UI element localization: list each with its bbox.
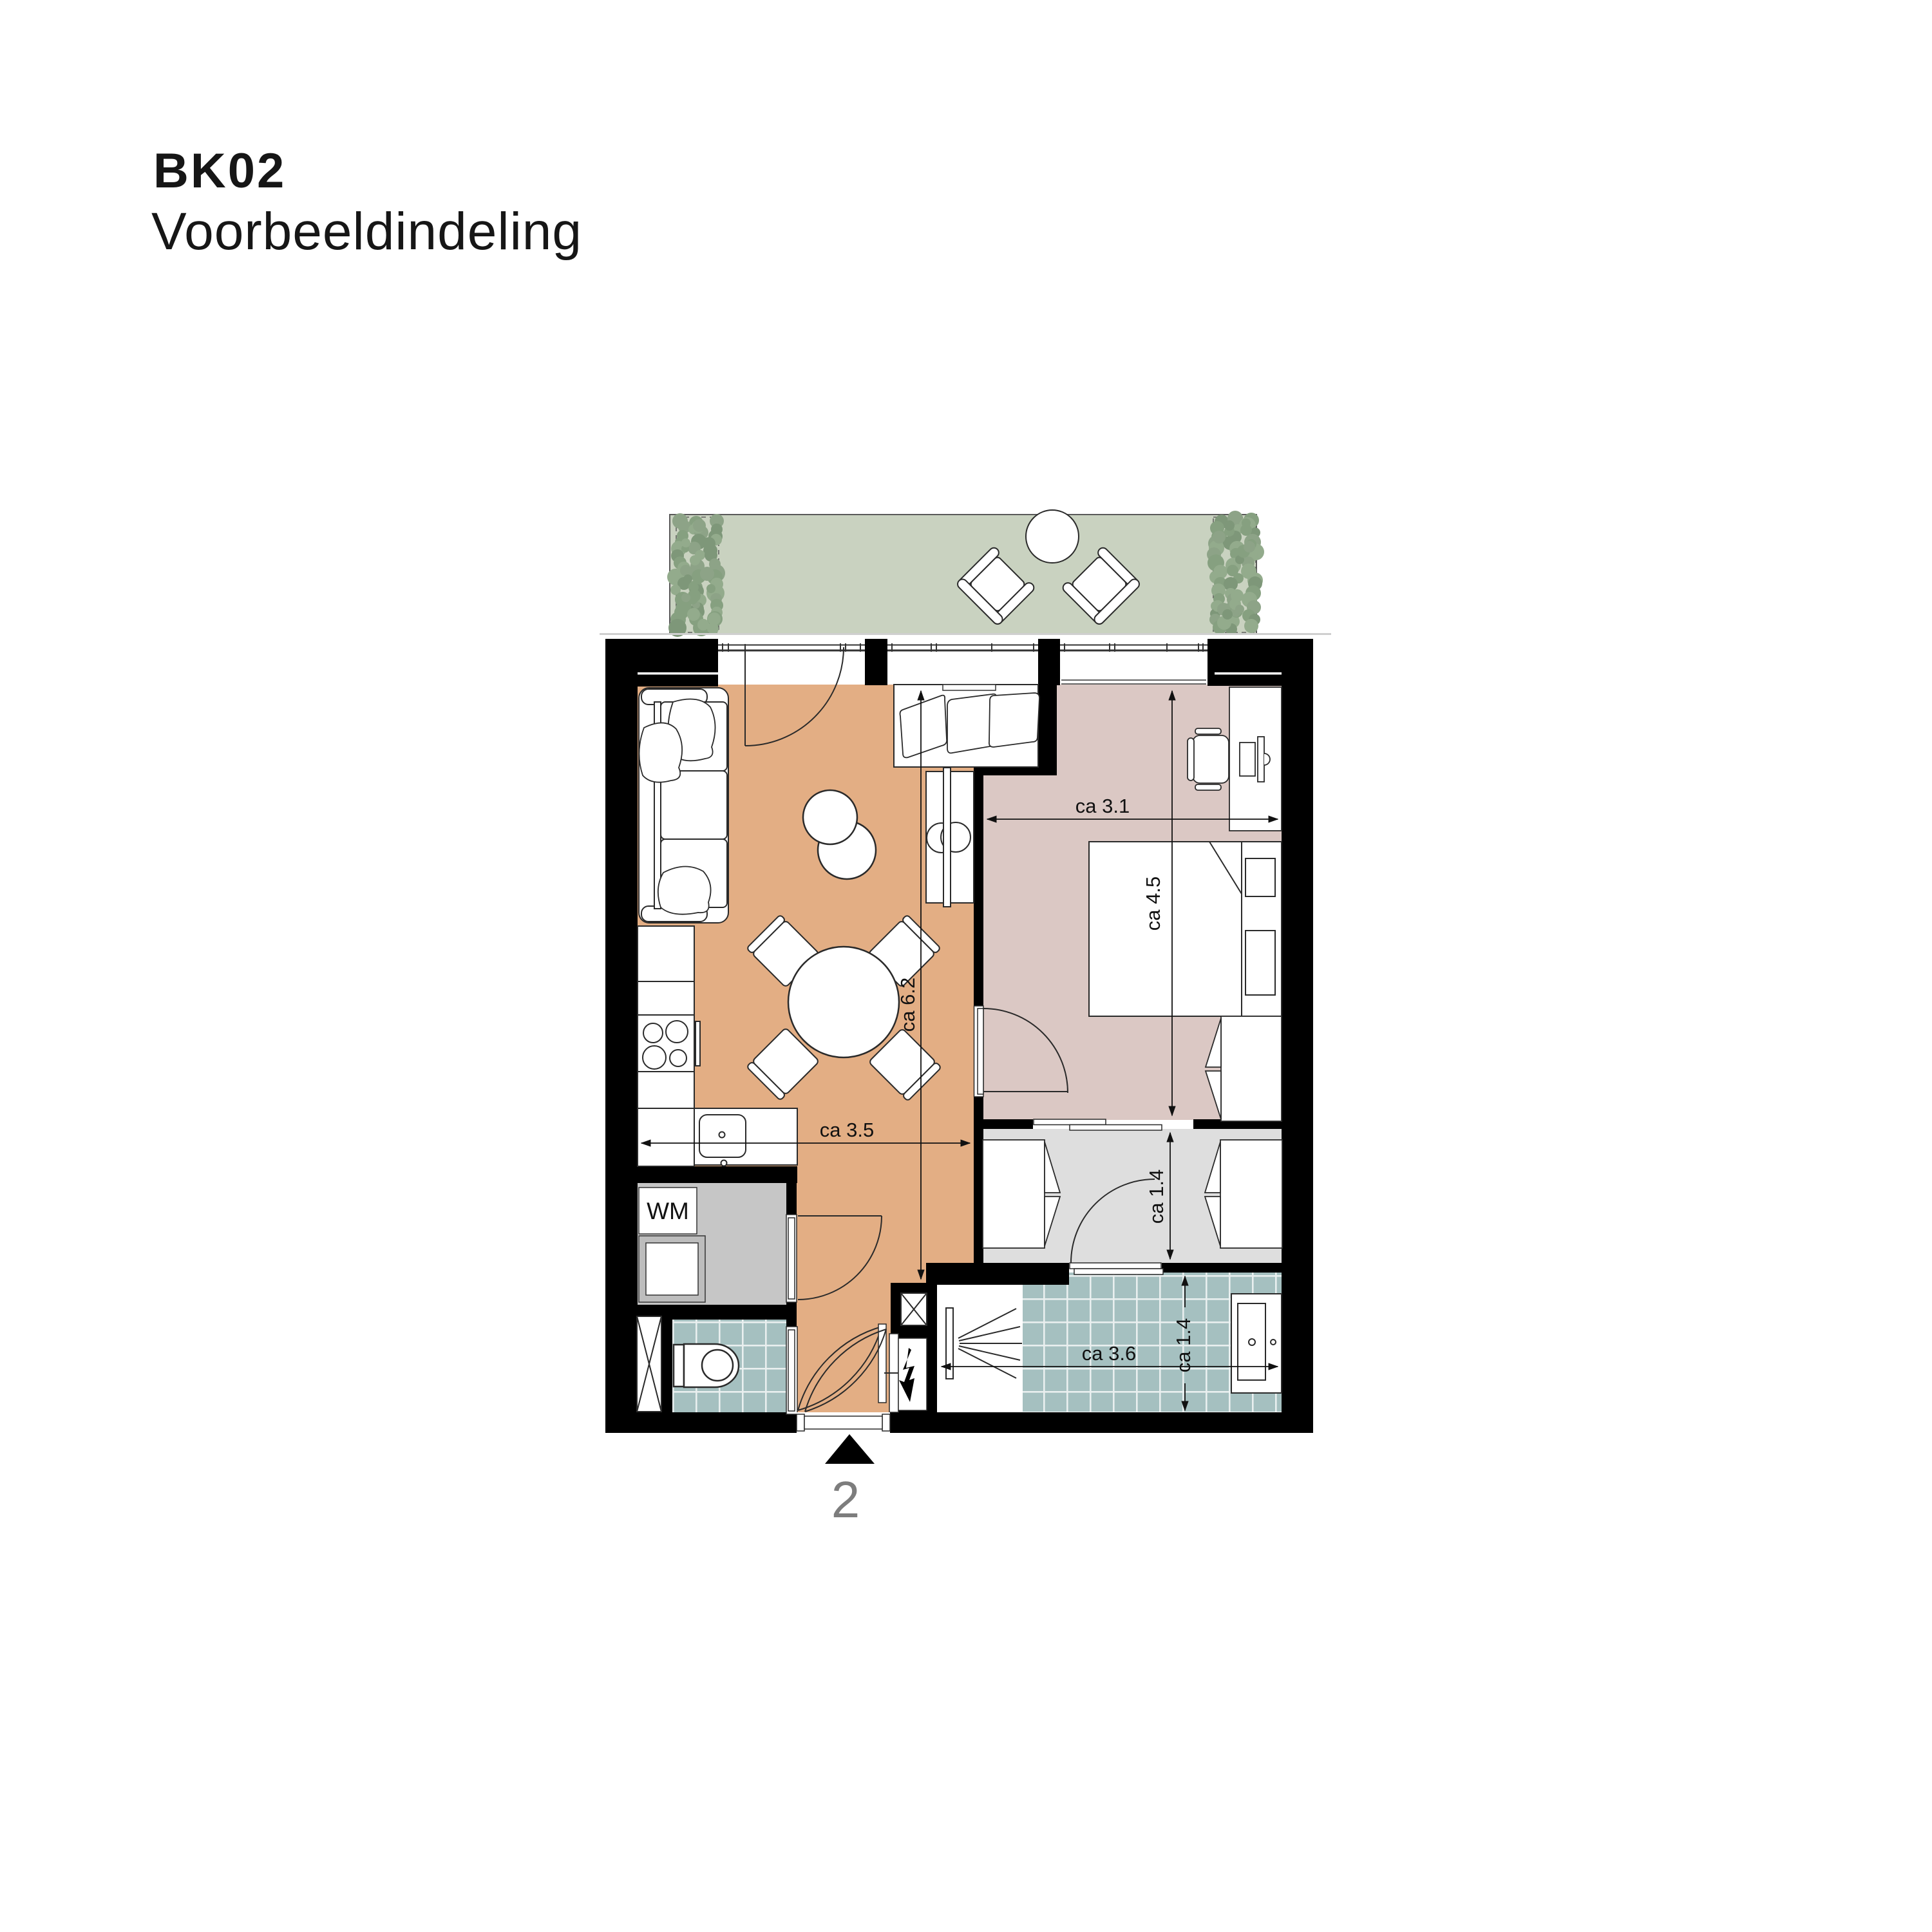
- svg-text:BK02: BK02: [153, 144, 286, 198]
- svg-text:ca 1.4: ca 1.4: [1172, 1318, 1195, 1372]
- svg-text:WM: WM: [647, 1198, 689, 1224]
- svg-text:ca 3.5: ca 3.5: [820, 1119, 874, 1141]
- svg-text:ca 1.4: ca 1.4: [1145, 1170, 1168, 1224]
- svg-text:Voorbeeldindeling: Voorbeeldindeling: [151, 202, 582, 261]
- svg-text:ca 3.1: ca 3.1: [1075, 795, 1130, 817]
- svg-text:2: 2: [831, 1471, 860, 1528]
- svg-text:ca 3.6: ca 3.6: [1082, 1342, 1136, 1365]
- svg-text:ca 4.5: ca 4.5: [1142, 876, 1164, 931]
- svg-text:ca 6.2: ca 6.2: [896, 978, 919, 1032]
